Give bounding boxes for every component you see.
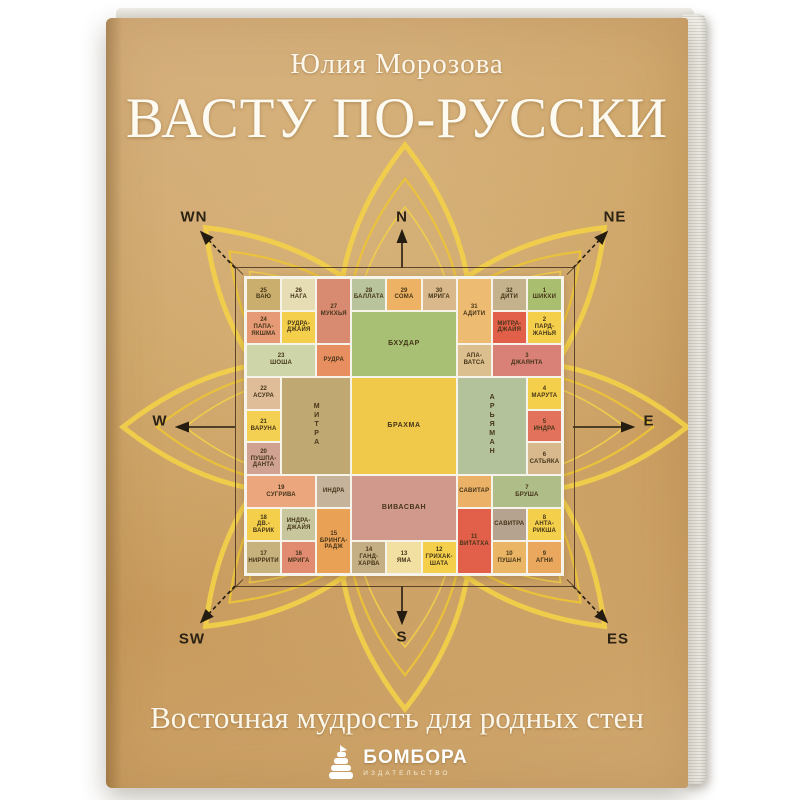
cell-deity-name: МРИГА bbox=[427, 294, 451, 301]
cell-deity-name: ГАНД-ХАРВА bbox=[352, 554, 385, 567]
cell-number: 26 bbox=[295, 288, 302, 295]
cell-number: 21 bbox=[260, 419, 267, 426]
cell-deity-name: АНТА-РИКША bbox=[528, 521, 561, 534]
cell-number: 31 bbox=[471, 304, 478, 311]
book-title: ВАСТУ ПО-РУССКИ bbox=[106, 86, 688, 151]
grid-cell: 4МАРУТА bbox=[528, 378, 561, 409]
grid-cell: АПА-ВАТСА bbox=[458, 345, 491, 376]
grid-cell: 14ГАНД-ХАРВА bbox=[352, 542, 385, 573]
cell-number: 30 bbox=[436, 288, 443, 295]
grid-cell: 28БАЛЛАТА bbox=[352, 279, 385, 310]
cell-number: 24 bbox=[260, 317, 267, 324]
compass-label-es: ES bbox=[607, 631, 629, 648]
author-name: Юлия Морозова bbox=[106, 48, 688, 81]
compass-label-s: S bbox=[396, 629, 407, 646]
grid-cell: 12ГРИХАК-ШАТА bbox=[423, 542, 456, 573]
cell-deity-name: ПАПА-ЯКШМА bbox=[247, 324, 280, 337]
grid-cell: 26НАГА bbox=[282, 279, 315, 310]
grid-cell: 16МРИГА bbox=[282, 542, 315, 573]
cell-deity-name: ДЖАЯНТА bbox=[510, 360, 544, 367]
cell-number: 29 bbox=[401, 288, 408, 295]
grid-cell: 6САТЬЯКА bbox=[528, 443, 561, 474]
grid-cell: 15БРИНГА-РАДЖ bbox=[317, 509, 350, 573]
cell-deity-name: ДИТИ bbox=[500, 294, 519, 301]
cell-deity-name: ВИТАТХА bbox=[459, 541, 490, 548]
grid-cell: 20ПУШПА-ДАНТА bbox=[247, 443, 280, 474]
grid-cell: 3ДЖАЯНТА bbox=[493, 345, 561, 376]
cell-deity-name: ИНДРА bbox=[322, 488, 346, 495]
cell-deity-name: ПАРД-ЖАНЬЯ bbox=[528, 324, 561, 337]
cell-deity-name: МИТРА bbox=[311, 403, 321, 448]
cell-number: 32 bbox=[506, 288, 513, 295]
cell-deity-name: ИНДРА bbox=[533, 426, 557, 433]
cell-deity-name: БАЛЛАТА bbox=[353, 294, 385, 301]
grid-cell: 29СОМА bbox=[387, 279, 420, 310]
grid-cell: 10ПУШАН bbox=[493, 542, 526, 573]
cell-deity-name: ВИВАСВАН bbox=[381, 504, 427, 512]
grid-cell: 13ЯМА bbox=[387, 542, 420, 573]
cell-deity-name: ВАЮ bbox=[255, 294, 272, 301]
cell-deity-name: БРАХМА bbox=[386, 422, 421, 430]
cell-deity-name: БРУША bbox=[514, 492, 539, 499]
cell-number: 14 bbox=[366, 547, 373, 554]
compass-label-wn: WN bbox=[181, 209, 208, 226]
cell-deity-name: ИНДРА-ДЖАЙЯ bbox=[282, 518, 315, 531]
grid-cell: 17НИРРИТИ bbox=[247, 542, 280, 573]
cell-deity-name: НИРРИТИ bbox=[247, 558, 279, 565]
cell-number: 1 bbox=[543, 288, 546, 295]
grid-cell: 30МРИГА bbox=[423, 279, 456, 310]
cell-number: 16 bbox=[295, 551, 302, 558]
grid-cell: АРЬЯМАН bbox=[458, 378, 526, 475]
grid-cell: 23ШОША bbox=[247, 345, 315, 376]
cell-number: 9 bbox=[543, 551, 546, 558]
grid-cell: 27МУКХЬЯ bbox=[317, 279, 350, 343]
cell-deity-name: МИТРА-ДЖАЙЯ bbox=[493, 321, 526, 334]
grid-cell: ИНДРА-ДЖАЙЯ bbox=[282, 509, 315, 540]
cell-deity-name: МУКХЬЯ bbox=[320, 311, 348, 318]
cell-deity-name: МРИГА bbox=[287, 558, 311, 565]
cell-number: 20 bbox=[260, 449, 267, 456]
grid-cell: РУДРА bbox=[317, 345, 350, 376]
cell-number: 7 bbox=[525, 485, 528, 492]
cell-number: 25 bbox=[260, 288, 267, 295]
cell-deity-name: ШИКХИ bbox=[532, 294, 557, 301]
cell-deity-name: САТЬЯКА bbox=[529, 459, 561, 466]
cell-deity-name: АРЬЯМАН bbox=[487, 394, 497, 457]
grid-cell: САВИТАР bbox=[458, 476, 491, 507]
grid-cell: 5ИНДРА bbox=[528, 411, 561, 442]
cell-number: 6 bbox=[543, 452, 546, 459]
grid-cell: 22АСУРА bbox=[247, 378, 280, 409]
grid-cell: ИНДРА bbox=[317, 476, 350, 507]
cell-deity-name: БРИНГА-РАДЖ bbox=[317, 538, 350, 551]
cell-deity-name: СУГРИВА bbox=[265, 492, 296, 499]
cell-deity-name: БХУДАР bbox=[387, 340, 421, 348]
cell-number: 22 bbox=[260, 386, 267, 393]
cell-number: 13 bbox=[401, 551, 408, 558]
cell-number: 12 bbox=[436, 547, 443, 554]
cell-deity-name: ГРИХАК-ШАТА bbox=[423, 554, 456, 567]
cell-deity-name: ЯМА bbox=[396, 558, 412, 565]
grid-cell: САВИТРА bbox=[493, 509, 526, 540]
grid-cell: 7БРУША bbox=[493, 476, 561, 507]
book-subtitle: Восточная мудрость для родных стен bbox=[106, 700, 688, 736]
cell-number: 11 bbox=[471, 534, 477, 541]
cairn-stones-icon bbox=[326, 744, 356, 780]
cell-deity-name: ПУШАН bbox=[496, 558, 522, 565]
cell-deity-name: САВИТРА bbox=[493, 521, 525, 528]
grid-cell: 31АДИТИ bbox=[458, 279, 491, 343]
grid-cell: МИТРА bbox=[282, 378, 350, 475]
compass-label-n: N bbox=[396, 209, 408, 226]
cell-number: 8 bbox=[543, 515, 546, 522]
grid-cell: 11ВИТАТХА bbox=[458, 509, 491, 573]
compass-label-w: W bbox=[152, 413, 167, 430]
grid-cell: 1ШИКХИ bbox=[528, 279, 561, 310]
grid-cell: РУДРА-ДЖАЙЯ bbox=[282, 312, 315, 343]
cell-deity-name: РУДРА-ДЖАЙЯ bbox=[282, 321, 315, 334]
cell-number: 15 bbox=[330, 531, 337, 538]
grid-cell: МИТРА-ДЖАЙЯ bbox=[493, 312, 526, 343]
grid-cell: ВИВАСВАН bbox=[352, 476, 455, 540]
cell-number: 28 bbox=[366, 288, 373, 295]
cell-number: 3 bbox=[525, 353, 528, 360]
book-cover-photo: Юлия Морозова ВАСТУ ПО-РУССКИ WN N NE bbox=[106, 8, 706, 792]
grid-cell: 21ВАРУНА bbox=[247, 411, 280, 442]
compass-label-ne: NE bbox=[604, 209, 627, 226]
grid-cell: 8АНТА-РИКША bbox=[528, 509, 561, 540]
cell-number: 2 bbox=[543, 317, 546, 324]
cell-deity-name: АСУРА bbox=[252, 393, 275, 400]
cell-deity-name: ДВ.-ВАРИК bbox=[247, 521, 280, 534]
cell-deity-name: ВАРУНА bbox=[250, 426, 278, 433]
cell-deity-name: ПУШПА-ДАНТА bbox=[247, 456, 280, 469]
publisher-tagline: ИЗДАТЕЛЬСТВО bbox=[363, 770, 450, 777]
vastu-mandala-grid: 25ВАЮ26НАГА27МУКХЬЯ28БАЛЛАТА29СОМА30МРИГ… bbox=[244, 276, 564, 576]
cell-number: 23 bbox=[278, 353, 285, 360]
book-front-cover: Юлия Морозова ВАСТУ ПО-РУССКИ WN N NE bbox=[106, 18, 688, 788]
cell-deity-name: НАГА bbox=[289, 294, 308, 301]
grid-cell: 18ДВ.-ВАРИК bbox=[247, 509, 280, 540]
compass-label-sw: SW bbox=[179, 631, 205, 648]
cell-number: 18 bbox=[260, 515, 267, 522]
grid-cell: БХУДАР bbox=[352, 312, 455, 376]
cell-deity-name: АПА-ВАТСА bbox=[458, 353, 491, 366]
grid-cell: БРАХМА bbox=[352, 378, 455, 475]
cell-deity-name: АГНИ bbox=[535, 558, 554, 565]
grid-cell: 9АГНИ bbox=[528, 542, 561, 573]
grid-cell: 19СУГРИВА bbox=[247, 476, 315, 507]
cell-deity-name: АДИТИ bbox=[462, 311, 486, 318]
grid-cell: 32ДИТИ bbox=[493, 279, 526, 310]
cell-number: 27 bbox=[330, 304, 337, 311]
cell-deity-name: МАРУТА bbox=[531, 393, 559, 400]
cell-number: 4 bbox=[543, 386, 546, 393]
cell-deity-name: ШОША bbox=[269, 360, 293, 367]
grid-cell: 24ПАПА-ЯКШМА bbox=[247, 312, 280, 343]
cell-number: 5 bbox=[543, 419, 546, 426]
cell-number: 17 bbox=[260, 551, 267, 558]
cell-number: 10 bbox=[506, 551, 513, 558]
publisher-name: БОМБОРА bbox=[363, 747, 467, 769]
cell-deity-name: СОМА bbox=[394, 294, 415, 301]
cell-number: 19 bbox=[278, 485, 285, 492]
grid-cell: 25ВАЮ bbox=[247, 279, 280, 310]
publisher-logo: БОМБОРА ИЗДАТЕЛЬСТВО bbox=[106, 744, 688, 780]
cell-deity-name: РУДРА bbox=[323, 357, 345, 364]
grid-cell: 2ПАРД-ЖАНЬЯ bbox=[528, 312, 561, 343]
compass-label-e: E bbox=[643, 413, 654, 430]
cell-deity-name: САВИТАР bbox=[458, 488, 490, 495]
